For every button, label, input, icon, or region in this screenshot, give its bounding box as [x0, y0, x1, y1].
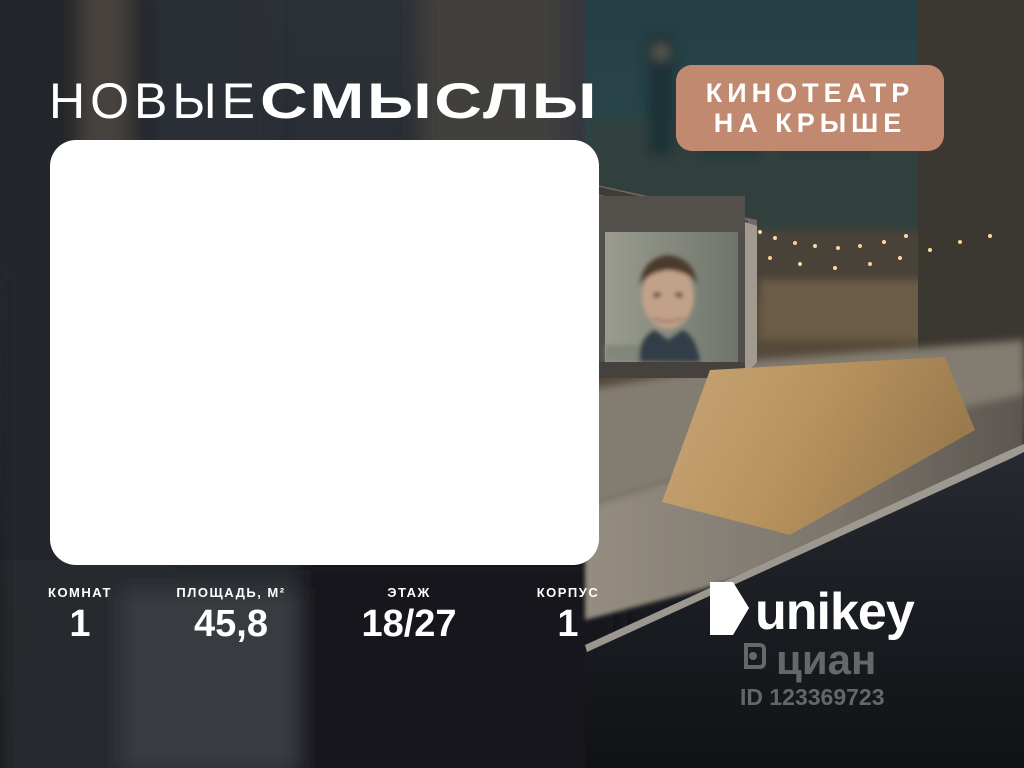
- svg-text:unikey: unikey: [755, 583, 915, 641]
